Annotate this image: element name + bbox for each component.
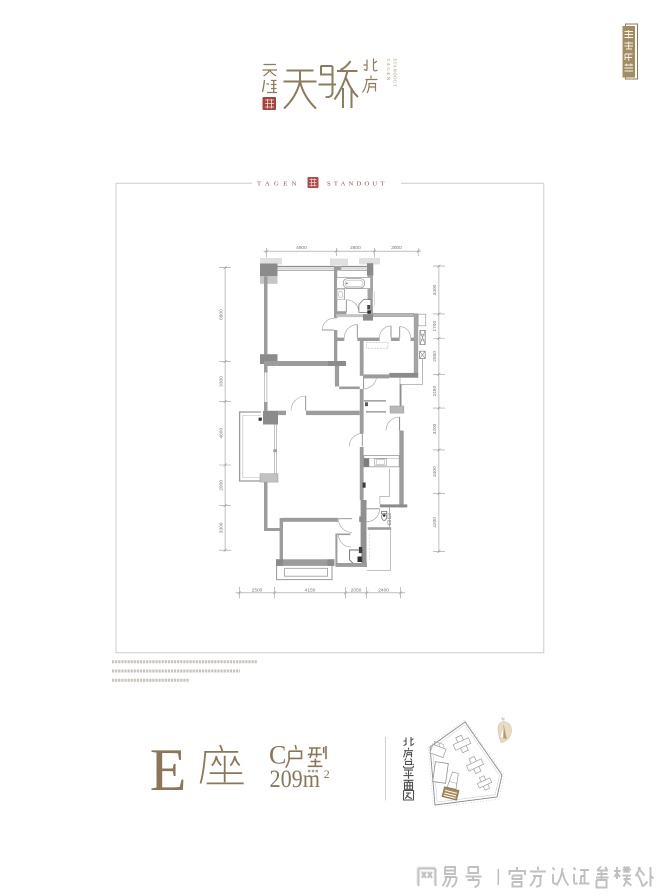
svg-text:TAGEN: TAGEN [386,59,391,82]
svg-text:4900: 4900 [296,245,307,251]
svg-text:2600: 2600 [350,245,361,251]
svg-text:3200: 3200 [432,423,438,434]
svg-text:4200: 4200 [432,517,438,528]
svg-text:2650: 2650 [432,351,438,362]
svg-text:3300: 3300 [218,522,224,533]
svg-text:3400: 3400 [432,284,438,295]
svg-text:STANDOUT: STANDOUT [393,59,398,88]
svg-text:1700: 1700 [432,321,438,332]
svg-text:2050: 2050 [351,587,362,593]
svg-text:6900: 6900 [218,309,224,320]
svg-text:4600: 4600 [218,428,224,439]
svg-text:2450: 2450 [432,386,438,397]
svg-text:2500: 2500 [252,587,263,593]
svg-text:STANDOUT: STANDOUT [327,181,388,188]
svg-text:N: N [501,717,504,722]
svg-text:E: E [150,737,187,803]
svg-text:3400: 3400 [432,466,438,477]
svg-text:3300: 3300 [218,376,224,387]
svg-text:3000: 3000 [391,245,402,251]
svg-text:209m: 209m [270,765,321,793]
svg-text:2: 2 [324,767,330,781]
svg-text:2900: 2900 [218,480,224,491]
svg-text:4150: 4150 [305,587,316,593]
svg-text:TAGEN: TAGEN [257,181,301,188]
svg-text:2400: 2400 [378,587,389,593]
